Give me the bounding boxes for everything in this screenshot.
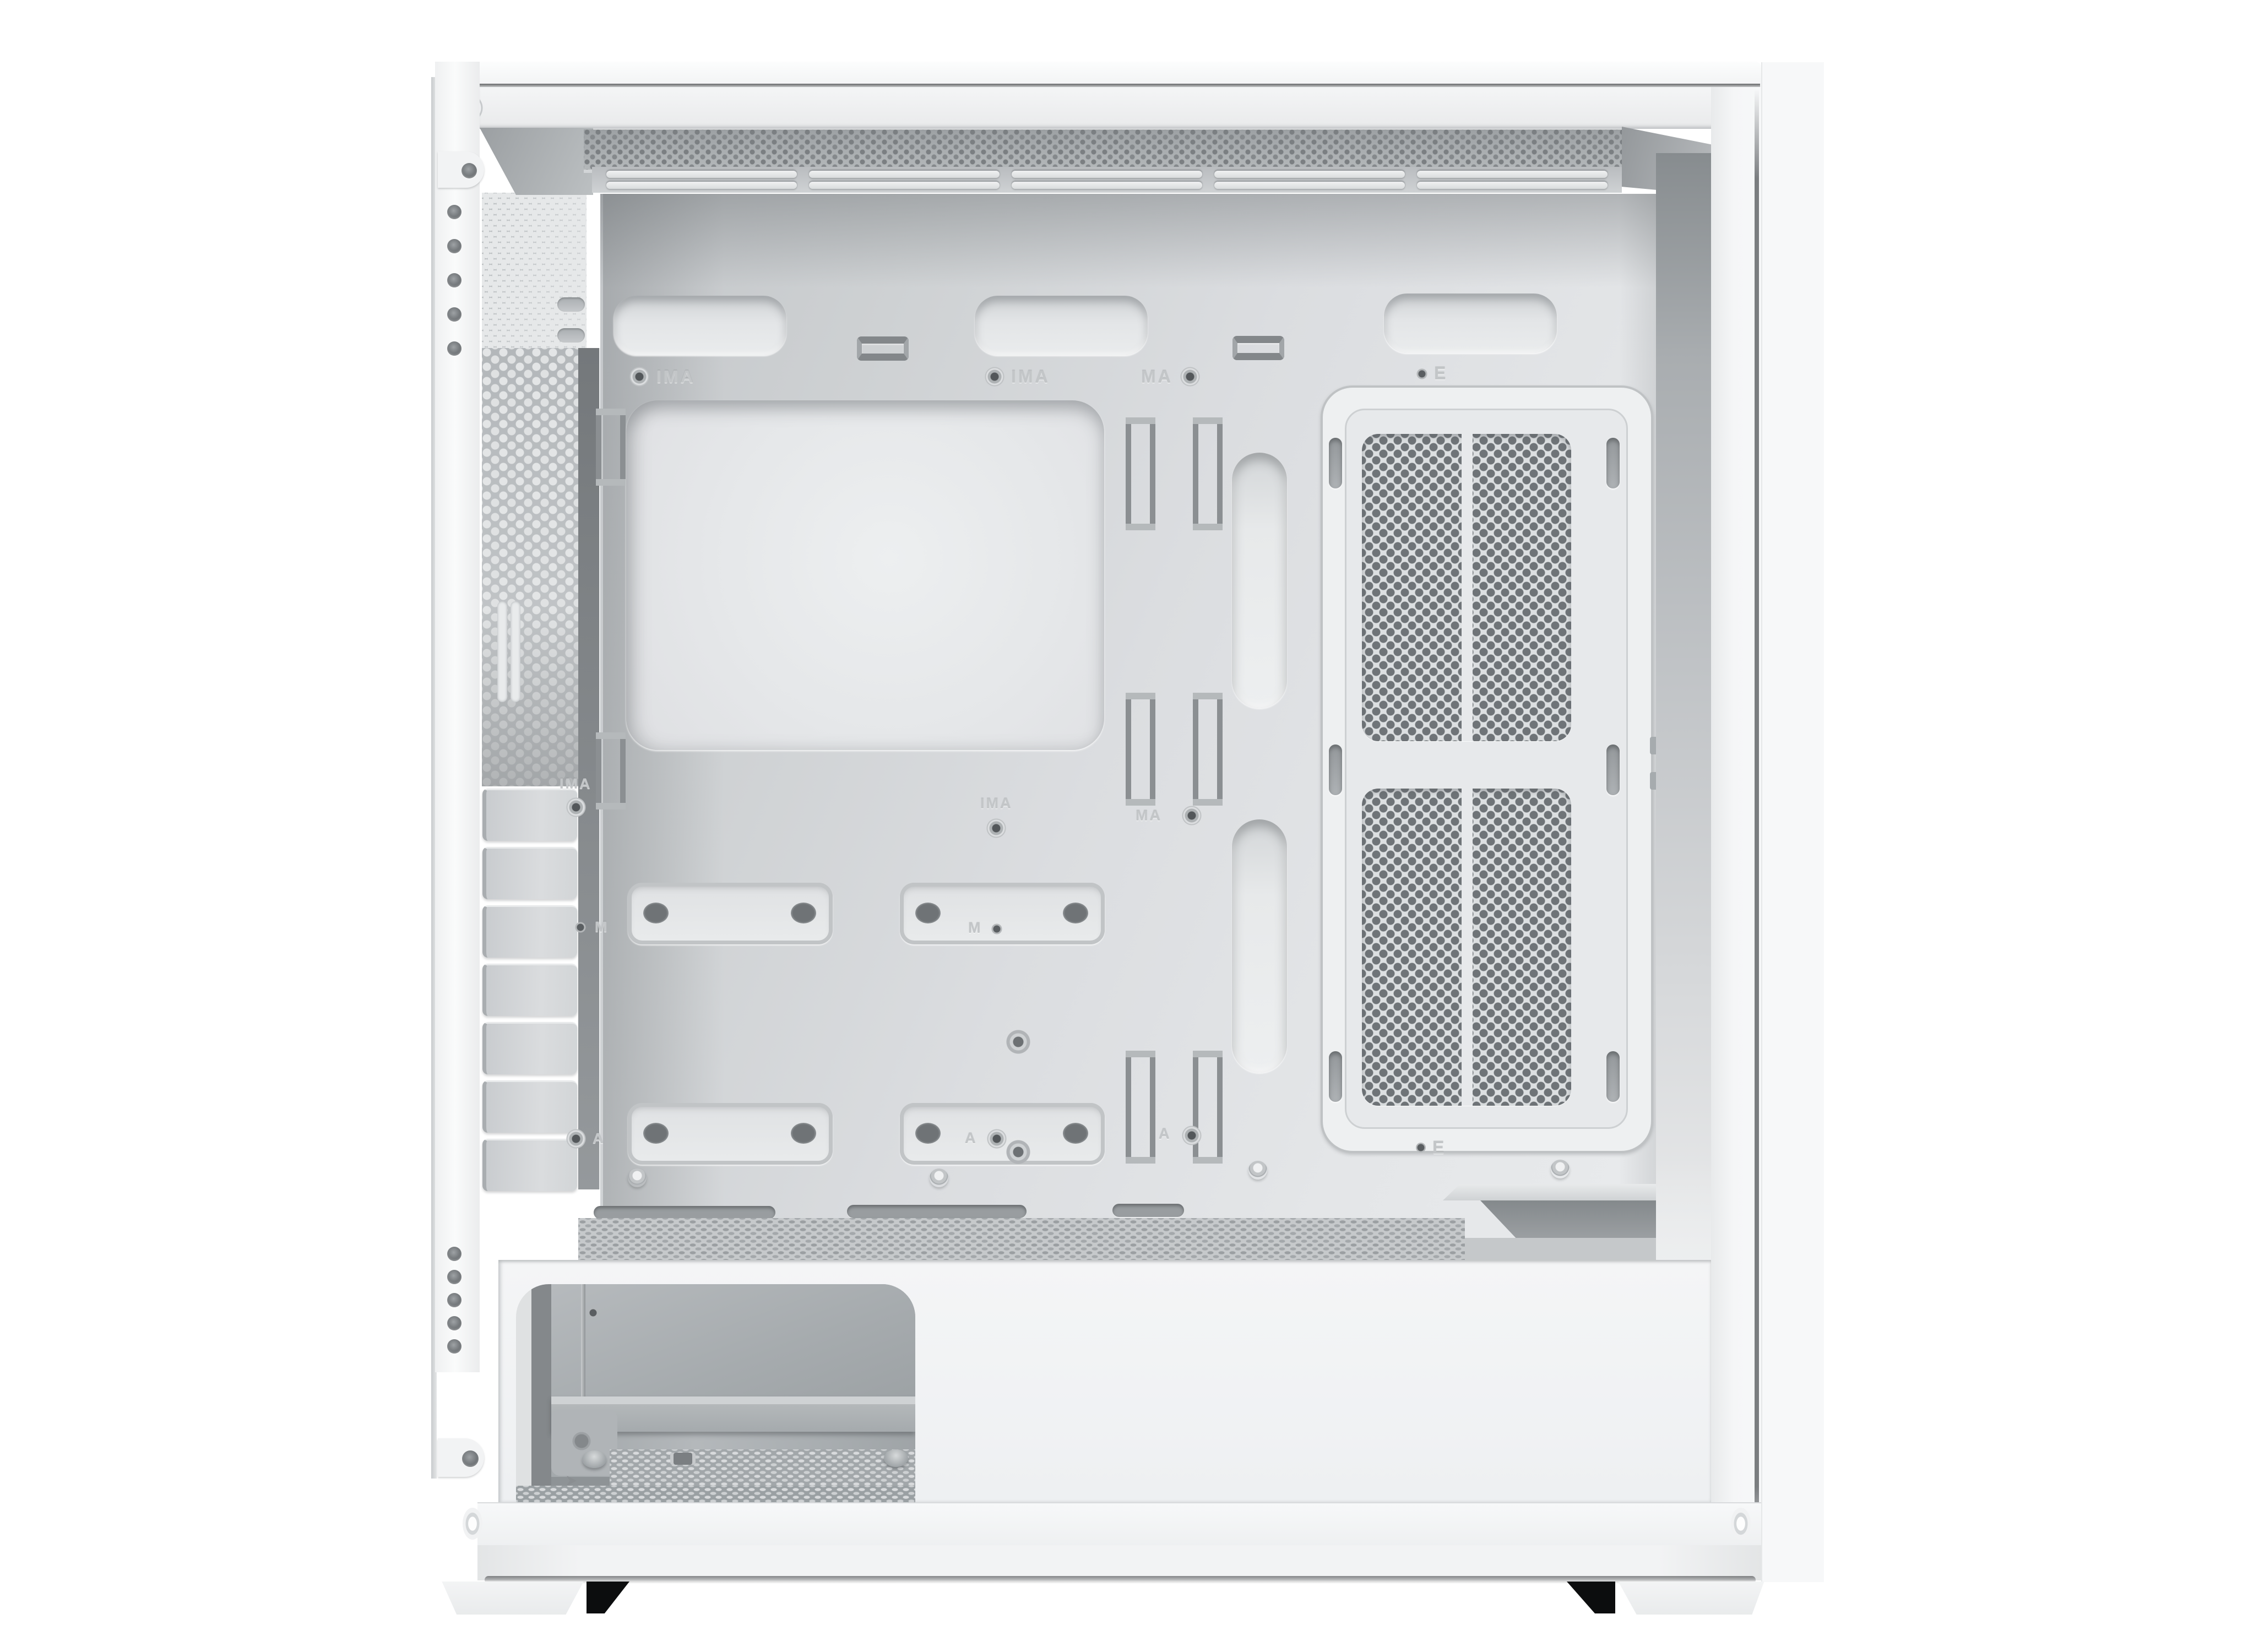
tray-top-shadow: [600, 194, 1685, 287]
rear-edge-tab-1: [557, 297, 585, 312]
louver-slat: [1012, 171, 1202, 178]
louver-slat: [1417, 182, 1608, 189]
radiator-mount-slot: [1329, 745, 1342, 795]
fan-window-divider: [1462, 434, 1473, 741]
expansion-slot-cover: [482, 905, 577, 958]
case-foot-right-shadow: [1567, 1582, 1615, 1613]
case-foot-right: [1615, 1582, 1767, 1615]
standoff-label-m-1: M: [595, 920, 609, 934]
ssd-plate-hole: [915, 903, 941, 923]
shroud-step-ledge: [1443, 1184, 1658, 1200]
cable-slot-vertical-lower: [1232, 819, 1287, 1073]
psu-bay-rivet: [589, 1308, 598, 1317]
standoff-nut: [1182, 1126, 1202, 1145]
fan-vent-window-lower: [1362, 789, 1571, 1106]
front-bezel-inner-strip: [1711, 87, 1761, 1580]
top-louver-group: [1214, 167, 1405, 193]
louver-slat: [1012, 182, 1202, 189]
case-foot-left-shadow: [587, 1582, 629, 1613]
side-rail-screw: [447, 1293, 461, 1307]
rear-exhaust-vent: [482, 193, 587, 348]
floor-cable-slot: [594, 1206, 775, 1219]
standoff-label-ma-2: MA: [1136, 808, 1162, 823]
bottom-rim-band: [477, 1502, 1761, 1546]
bracket-rail-slots-right: [1606, 438, 1620, 1101]
shroud-step-band: [1465, 1238, 1658, 1261]
expansion-slot-cover: [482, 1022, 577, 1074]
louver-slat: [809, 182, 1000, 189]
standoff-label-ima-2: IMA: [1011, 368, 1050, 385]
standoff-nut: [629, 367, 649, 387]
louver-slat: [1214, 171, 1405, 178]
side-rail-screw: [447, 1339, 461, 1354]
expansion-slot-covers: [482, 789, 577, 1191]
rim-grommet-right: [1731, 1508, 1751, 1540]
ssd-mount-plate: [628, 883, 833, 944]
ssd-plate-hole: [1063, 1123, 1088, 1144]
side-rail-screw: [447, 307, 461, 322]
side-rail-screw: [447, 1247, 461, 1261]
top-louver-band: [592, 167, 1622, 193]
ssd-mount-plate: [900, 883, 1105, 944]
louver-slat: [1214, 182, 1405, 189]
cable-tie-loop-1: [857, 336, 909, 361]
standoff-nut: [985, 367, 1004, 387]
psu-bracket-hole: [572, 1432, 591, 1450]
ceiling-corner-wedge-left: [480, 128, 593, 195]
top-louver-group: [1417, 167, 1608, 193]
expansion-slot-cover: [482, 789, 577, 841]
cable-slot-vertical-upper: [1232, 453, 1287, 708]
cable-tie-loop-2: [1232, 336, 1284, 360]
standoff-nut: [566, 1129, 586, 1149]
psu-opening: [516, 1284, 915, 1502]
standoff-hole-m: [991, 923, 1002, 934]
rim-grommet-left: [463, 1508, 482, 1540]
expansion-slot-cover: [482, 1139, 577, 1191]
standoff-label-ima-1: IMA: [656, 368, 696, 385]
fan-window-divider: [1462, 789, 1473, 1106]
psu-bracket-plate: [551, 1410, 617, 1476]
screw-hole-e-top: [1416, 368, 1427, 379]
tab-screw-top: [461, 163, 477, 178]
ssd-mount-plate: [628, 1103, 833, 1165]
standoff-nut: [987, 1129, 1007, 1149]
expansion-slot-cover: [482, 964, 577, 1016]
ground-shadow: [485, 1576, 1756, 1584]
cable-cutout-top-3: [1384, 294, 1557, 353]
side-rail-screw: [447, 239, 461, 253]
bottom-lower-band: [477, 1545, 1761, 1580]
radiator-mount-slot: [1606, 745, 1620, 795]
ssd-plate-hole: [643, 903, 669, 923]
expansion-slot-cover: [482, 1080, 577, 1133]
standoff-nut: [1182, 806, 1202, 825]
standoff-label-e-bottom: E: [1432, 1139, 1446, 1156]
rear-slot-opening-1: [497, 601, 507, 702]
cable-ladder: [596, 409, 626, 486]
cpu-cooler-cutout: [626, 400, 1104, 750]
psu-standoff-dome: [582, 1450, 606, 1468]
radiator-mount-slot: [1329, 438, 1342, 488]
fan-vent-window-upper: [1362, 434, 1571, 741]
side-rail-tab-top: [438, 151, 484, 188]
standoff-label-m-2: M: [968, 921, 982, 936]
tray-rivet: [930, 1169, 948, 1187]
standoff-label-a-2: A: [965, 1131, 978, 1146]
standoff-label-e-top: E: [1434, 365, 1448, 382]
psu-bay-back-wall: [551, 1284, 915, 1401]
top-louver-group: [606, 167, 797, 193]
floor-cable-slot: [1112, 1204, 1184, 1217]
psu-floor-bracket: [670, 1453, 696, 1465]
front-bezel-gap-line: [1755, 89, 1759, 1576]
louver-slat: [606, 182, 797, 189]
ssd-plate-hole: [791, 903, 816, 923]
side-rail-screw: [447, 205, 461, 219]
cable-ladder: [1126, 1051, 1155, 1164]
standoff-hole-m: [575, 922, 586, 933]
cable-ladder: [1126, 417, 1155, 530]
cable-ladder: [596, 732, 626, 809]
rear-fan-mesh-shade: [482, 606, 579, 786]
screw-hole-e-bottom: [1416, 1143, 1426, 1153]
pc-case-interior-photo: IMA IMA MA E IMA IMA MA M M: [0, 0, 2248, 1652]
louver-slat: [1417, 171, 1608, 178]
louver-slat: [809, 171, 1000, 178]
ssd-plate-hole: [643, 1123, 669, 1144]
front-mesh-panel: [1656, 153, 1711, 1294]
cable-ladder: [1193, 417, 1223, 530]
radiator-mount-slot: [1606, 1051, 1620, 1102]
side-rail-screw: [447, 273, 461, 287]
standoff-nut: [1180, 367, 1200, 387]
standoff-nut: [566, 797, 586, 817]
cable-ladder: [1126, 693, 1155, 806]
top-inner-frame: [477, 87, 1750, 129]
standoff-label-ima-3: IMA: [560, 776, 592, 791]
radiator-mount-slot: [1606, 438, 1620, 488]
cable-cutout-top-2: [975, 296, 1148, 355]
ssd-plate-hole: [1063, 903, 1088, 923]
top-louver-group: [1012, 167, 1202, 193]
side-rail-screws-bottom: [447, 1247, 461, 1354]
chamber-floor-mesh: [578, 1218, 1465, 1264]
rear-edge-tab-2: [557, 328, 585, 343]
psu-bay-corner-line: [581, 1284, 585, 1401]
ssd-plate-hole: [791, 1123, 816, 1144]
side-rail-screw: [447, 341, 461, 356]
alignment-standoff-ring: [1006, 1029, 1031, 1055]
floor-cable-slot: [847, 1205, 1027, 1218]
tray-rivet: [1551, 1160, 1570, 1178]
side-rail-screw: [447, 1270, 461, 1284]
cable-ladder: [1193, 693, 1223, 806]
ssd-plate-hole: [915, 1123, 941, 1144]
tray-rivet: [1248, 1161, 1267, 1180]
bracket-rail-slots-left: [1329, 438, 1342, 1101]
radiator-mount-slot: [1329, 1051, 1342, 1102]
standoff-label-ma-1: MA: [1141, 368, 1173, 385]
standoff-label-ima-4: IMA: [980, 796, 1013, 811]
side-rail-screws-top: [447, 205, 461, 356]
tab-screw-bottom: [462, 1450, 479, 1467]
psu-bay-floor-front: [610, 1449, 915, 1486]
louver-slat: [606, 171, 797, 178]
side-rail-screw: [447, 1316, 461, 1330]
standoff-label-a-3: A: [1159, 1127, 1171, 1142]
standoff-nut: [986, 818, 1006, 838]
expansion-slot-cover: [482, 847, 577, 899]
cable-cutout-top-1: [613, 296, 786, 355]
alignment-standoff-ring: [1006, 1139, 1031, 1165]
case-foot-left: [439, 1582, 587, 1615]
top-louver-group: [809, 167, 1000, 193]
standoff-label-a-1: A: [593, 1131, 605, 1146]
tray-rivet: [628, 1169, 647, 1187]
cable-ladder: [1193, 1051, 1223, 1164]
rear-slot-opening-2: [511, 601, 520, 702]
front-bezel-side-face: [1761, 62, 1824, 1582]
psu-standoff-dome: [884, 1449, 908, 1467]
psu-bay-floor: [516, 1486, 915, 1502]
